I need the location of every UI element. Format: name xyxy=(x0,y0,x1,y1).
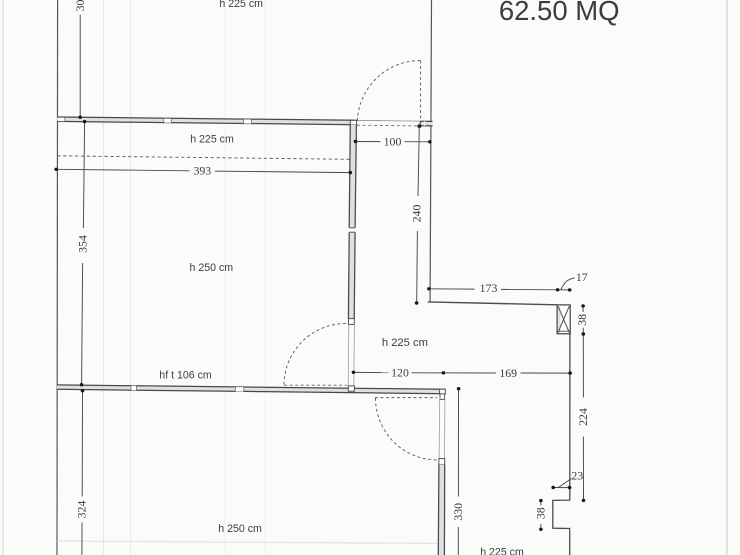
svg-text:h 225 cm: h 225 cm xyxy=(480,546,524,555)
svg-text:62.50 MQ: 62.50 MQ xyxy=(499,0,620,26)
svg-text:38: 38 xyxy=(575,314,589,326)
svg-text:23: 23 xyxy=(571,469,583,483)
svg-text:hf t 106 cm: hf t 106 cm xyxy=(159,370,212,382)
svg-text:354: 354 xyxy=(76,235,90,253)
svg-text:38: 38 xyxy=(534,507,548,519)
svg-text:240: 240 xyxy=(410,205,424,223)
svg-text:224: 224 xyxy=(576,408,590,426)
svg-text:h 250 cm: h 250 cm xyxy=(190,262,234,274)
svg-text:h 250 cm: h 250 cm xyxy=(218,523,262,535)
svg-text:330: 330 xyxy=(451,503,465,521)
svg-text:h 225 cm: h 225 cm xyxy=(190,134,234,146)
svg-text:100: 100 xyxy=(384,134,402,148)
svg-text:324: 324 xyxy=(75,501,89,519)
svg-text:173: 173 xyxy=(480,281,498,295)
svg-text:120: 120 xyxy=(391,365,409,379)
svg-text:30: 30 xyxy=(73,0,87,11)
svg-text:393: 393 xyxy=(193,164,211,178)
svg-text:h 225 cm: h 225 cm xyxy=(219,0,263,10)
svg-text:169: 169 xyxy=(499,366,517,380)
svg-text:h 225 cm: h 225 cm xyxy=(382,337,428,349)
svg-text:17: 17 xyxy=(576,270,588,284)
